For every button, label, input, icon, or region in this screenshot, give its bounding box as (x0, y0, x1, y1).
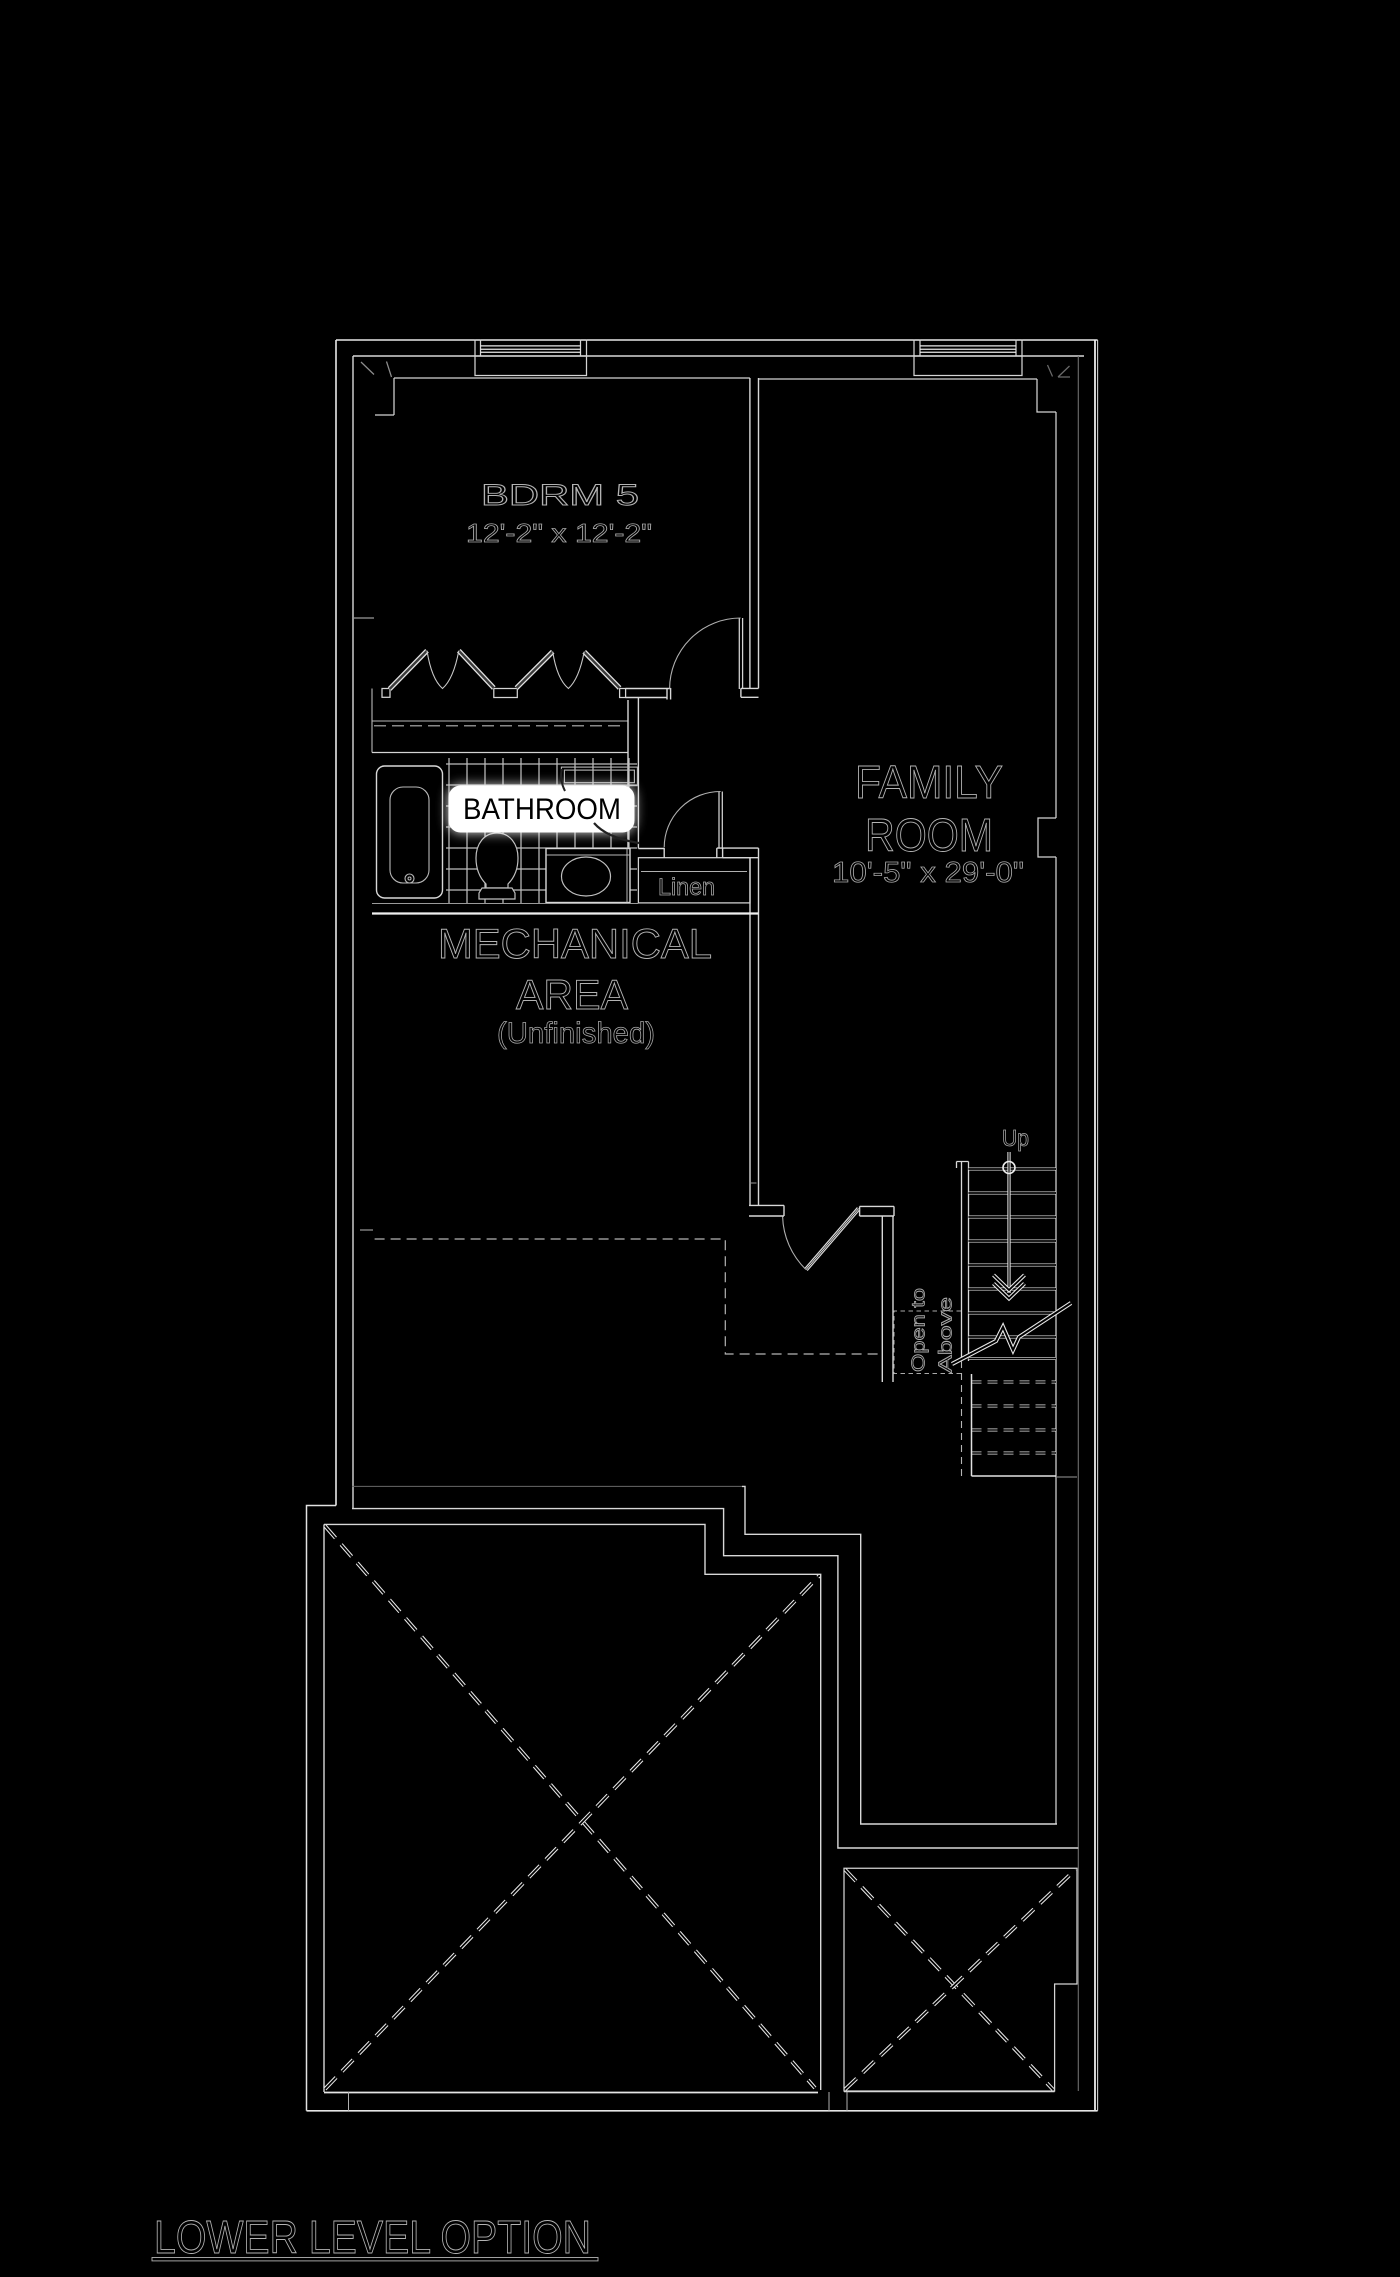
svg-text:12'-2" x 12'-2": 12'-2" x 12'-2" (466, 518, 652, 548)
svg-text:LOWER LEVEL OPTION: LOWER LEVEL OPTION (154, 2211, 591, 2263)
svg-text:10'-5" x 29'-0": 10'-5" x 29'-0" (832, 857, 1024, 889)
svg-text:FAMILY: FAMILY (855, 756, 1003, 808)
svg-text:MECHANICAL: MECHANICAL (438, 920, 712, 967)
svg-text:BDRM 5: BDRM 5 (481, 479, 639, 512)
svg-text:Open to: Open to (909, 1288, 929, 1372)
svg-text:AREA: AREA (516, 971, 628, 1018)
svg-text:Up: Up (1002, 1125, 1029, 1151)
svg-text:ROOM: ROOM (865, 809, 993, 861)
svg-text:Above: Above (936, 1297, 956, 1373)
svg-text:BATHROOM: BATHROOM (463, 793, 621, 826)
svg-text:(Unfinished): (Unfinished) (497, 1017, 655, 1050)
svg-text:Linen: Linen (658, 874, 715, 901)
